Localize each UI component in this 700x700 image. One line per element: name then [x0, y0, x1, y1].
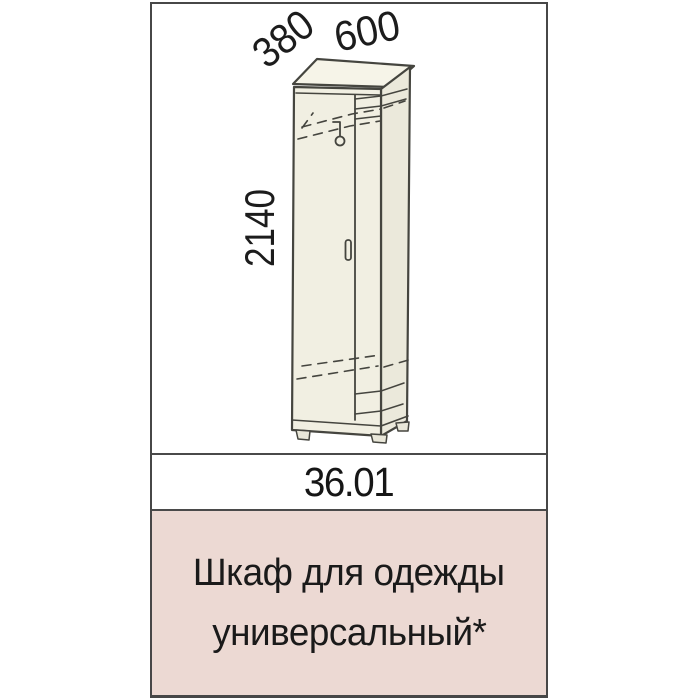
catalog-page: 380 600 2140 36.01 Шкаф для одежды униве…: [0, 0, 700, 700]
door-handle: [346, 240, 352, 260]
catalog-card: 380 600 2140 36.01 Шкаф для одежды униве…: [150, 2, 548, 698]
wardrobe-side-panel: [381, 67, 410, 436]
item-name-line1: Шкаф для одежды: [193, 543, 505, 603]
wardrobe-diagram: 380 600 2140: [152, 4, 546, 453]
item-name-line2: универсальный*: [212, 603, 486, 663]
item-name-band: Шкаф для одежды универсальный*: [152, 509, 546, 695]
item-code-band: 36.01: [152, 453, 546, 509]
drawing-area: 380 600 2140: [152, 4, 546, 453]
dimension-width-label: 600: [330, 4, 404, 61]
dimension-height-label: 2140: [236, 189, 283, 267]
item-code: 36.01: [304, 459, 393, 506]
